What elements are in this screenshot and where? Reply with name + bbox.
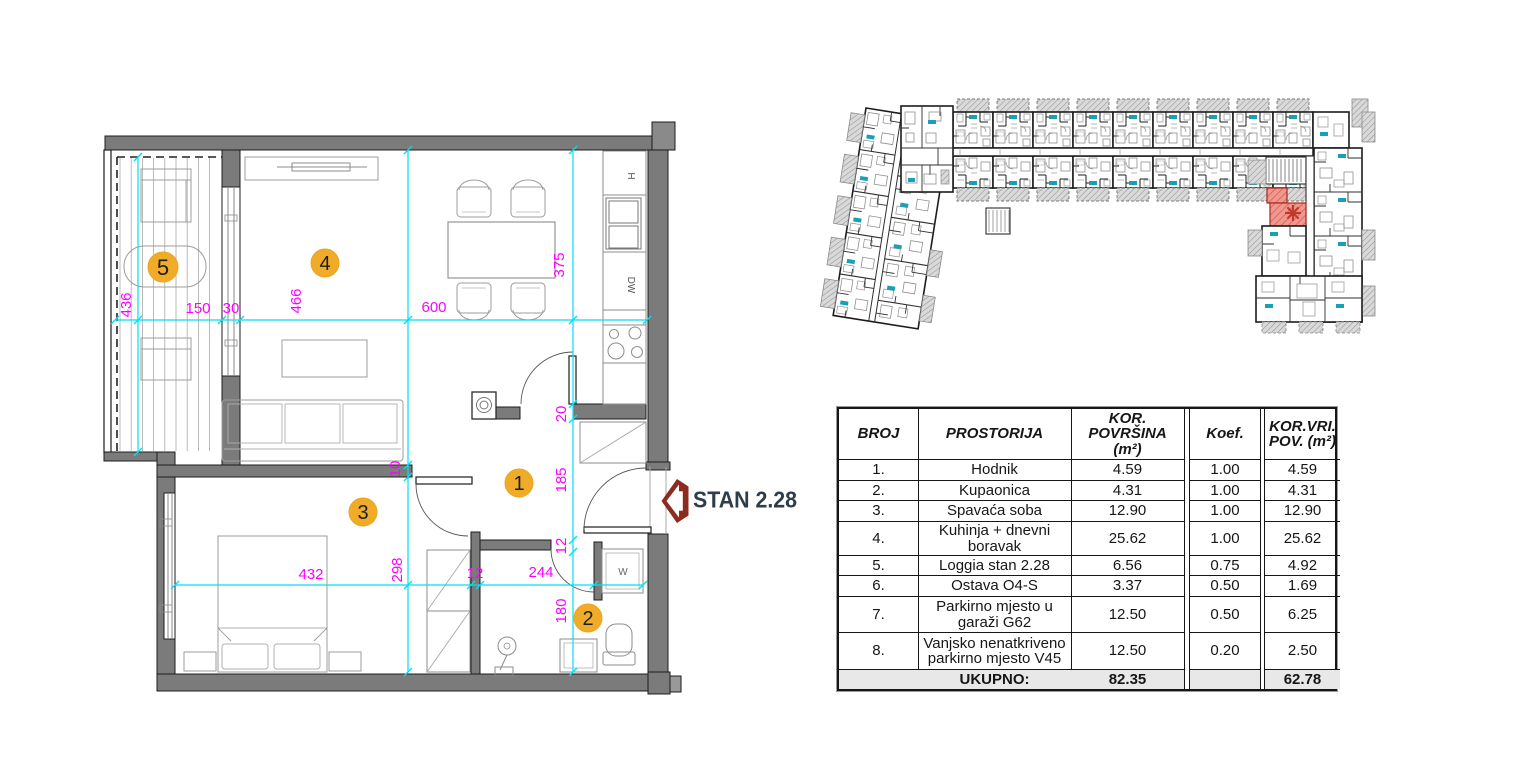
svg-text:375: 375	[551, 252, 568, 277]
svg-text:298: 298	[389, 557, 406, 582]
svg-text:3: 3	[357, 502, 368, 524]
svg-text:W: W	[618, 567, 628, 578]
svg-text:4: 4	[319, 253, 330, 275]
svg-text:466: 466	[288, 288, 305, 313]
svg-text:12: 12	[467, 565, 484, 582]
svg-text:180: 180	[553, 598, 570, 623]
svg-text:10: 10	[387, 461, 404, 478]
svg-text:1: 1	[513, 473, 524, 495]
svg-text:185: 185	[553, 467, 570, 492]
svg-text:600: 600	[421, 299, 446, 316]
svg-text:20: 20	[553, 406, 570, 423]
svg-text:DW: DW	[625, 277, 636, 294]
svg-text:150: 150	[185, 300, 210, 317]
svg-text:30: 30	[223, 300, 240, 317]
svg-text:432: 432	[298, 566, 323, 583]
svg-text:5: 5	[157, 255, 169, 280]
svg-text:436: 436	[118, 292, 135, 317]
svg-text:244: 244	[528, 564, 553, 581]
svg-text:H: H	[625, 172, 636, 179]
svg-text:2: 2	[582, 608, 593, 630]
svg-text:STAN 2.28: STAN 2.28	[693, 487, 797, 513]
svg-text:12: 12	[553, 538, 570, 555]
